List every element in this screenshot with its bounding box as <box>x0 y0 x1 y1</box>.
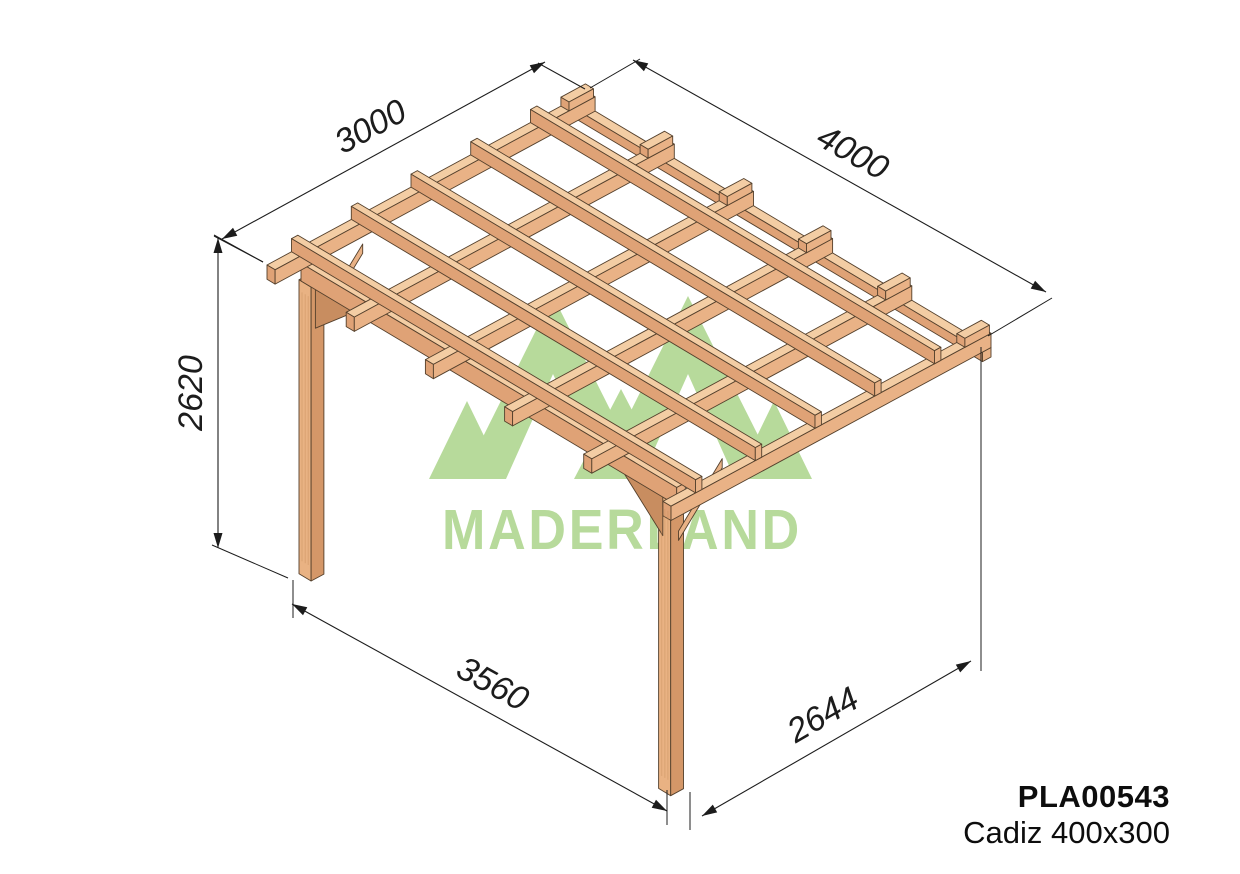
extension-line <box>590 59 640 88</box>
dimension-label-depth-bottom: 2644 <box>780 680 865 751</box>
dimension-line <box>292 604 667 811</box>
dimension-arrowhead <box>1031 281 1046 292</box>
dimension-label-height-left: 2620 <box>172 355 210 432</box>
front-post-right <box>671 495 684 796</box>
dimension-arrowhead <box>292 604 307 615</box>
dimension-label-depth-top: 3000 <box>328 92 413 162</box>
dimension-arrowhead <box>956 661 971 672</box>
dimension-arrowhead <box>652 800 667 811</box>
purlin-5-right <box>935 347 941 364</box>
extension-line <box>988 298 1052 336</box>
purlin-2-right <box>755 444 761 461</box>
pergola-isometric-drawing: MADERLAND30004000262035602644 <box>0 0 1240 874</box>
extension-line <box>538 63 585 89</box>
maderland-wordmark: MADERLAND <box>442 498 802 562</box>
extension-line <box>214 236 263 262</box>
purlin-4-right <box>875 380 881 397</box>
dimension-label-width-bottom: 3560 <box>450 649 535 719</box>
extension-line <box>212 545 288 578</box>
purlin-3-right <box>815 412 821 429</box>
purlin-1-right <box>696 476 702 493</box>
dimension-arrowhead <box>222 228 237 239</box>
purlin-5-top <box>531 106 941 351</box>
pergola-diagram-page: MADERLAND30004000262035602644 PLA00543 C… <box>0 0 1240 874</box>
product-name: Cadiz 400x300 <box>963 815 1170 851</box>
dimension-height-left: 2620 <box>172 236 288 578</box>
dimension-arrowhead <box>530 62 545 73</box>
dimension-width-bottom: 3560 <box>292 580 667 825</box>
dimension-label-width-top: 4000 <box>810 117 895 187</box>
dimension-arrowhead <box>702 805 717 816</box>
dimension-arrowhead <box>633 60 648 71</box>
product-code: PLA00543 <box>963 779 1170 815</box>
product-info: PLA00543 Cadiz 400x300 <box>963 779 1170 851</box>
